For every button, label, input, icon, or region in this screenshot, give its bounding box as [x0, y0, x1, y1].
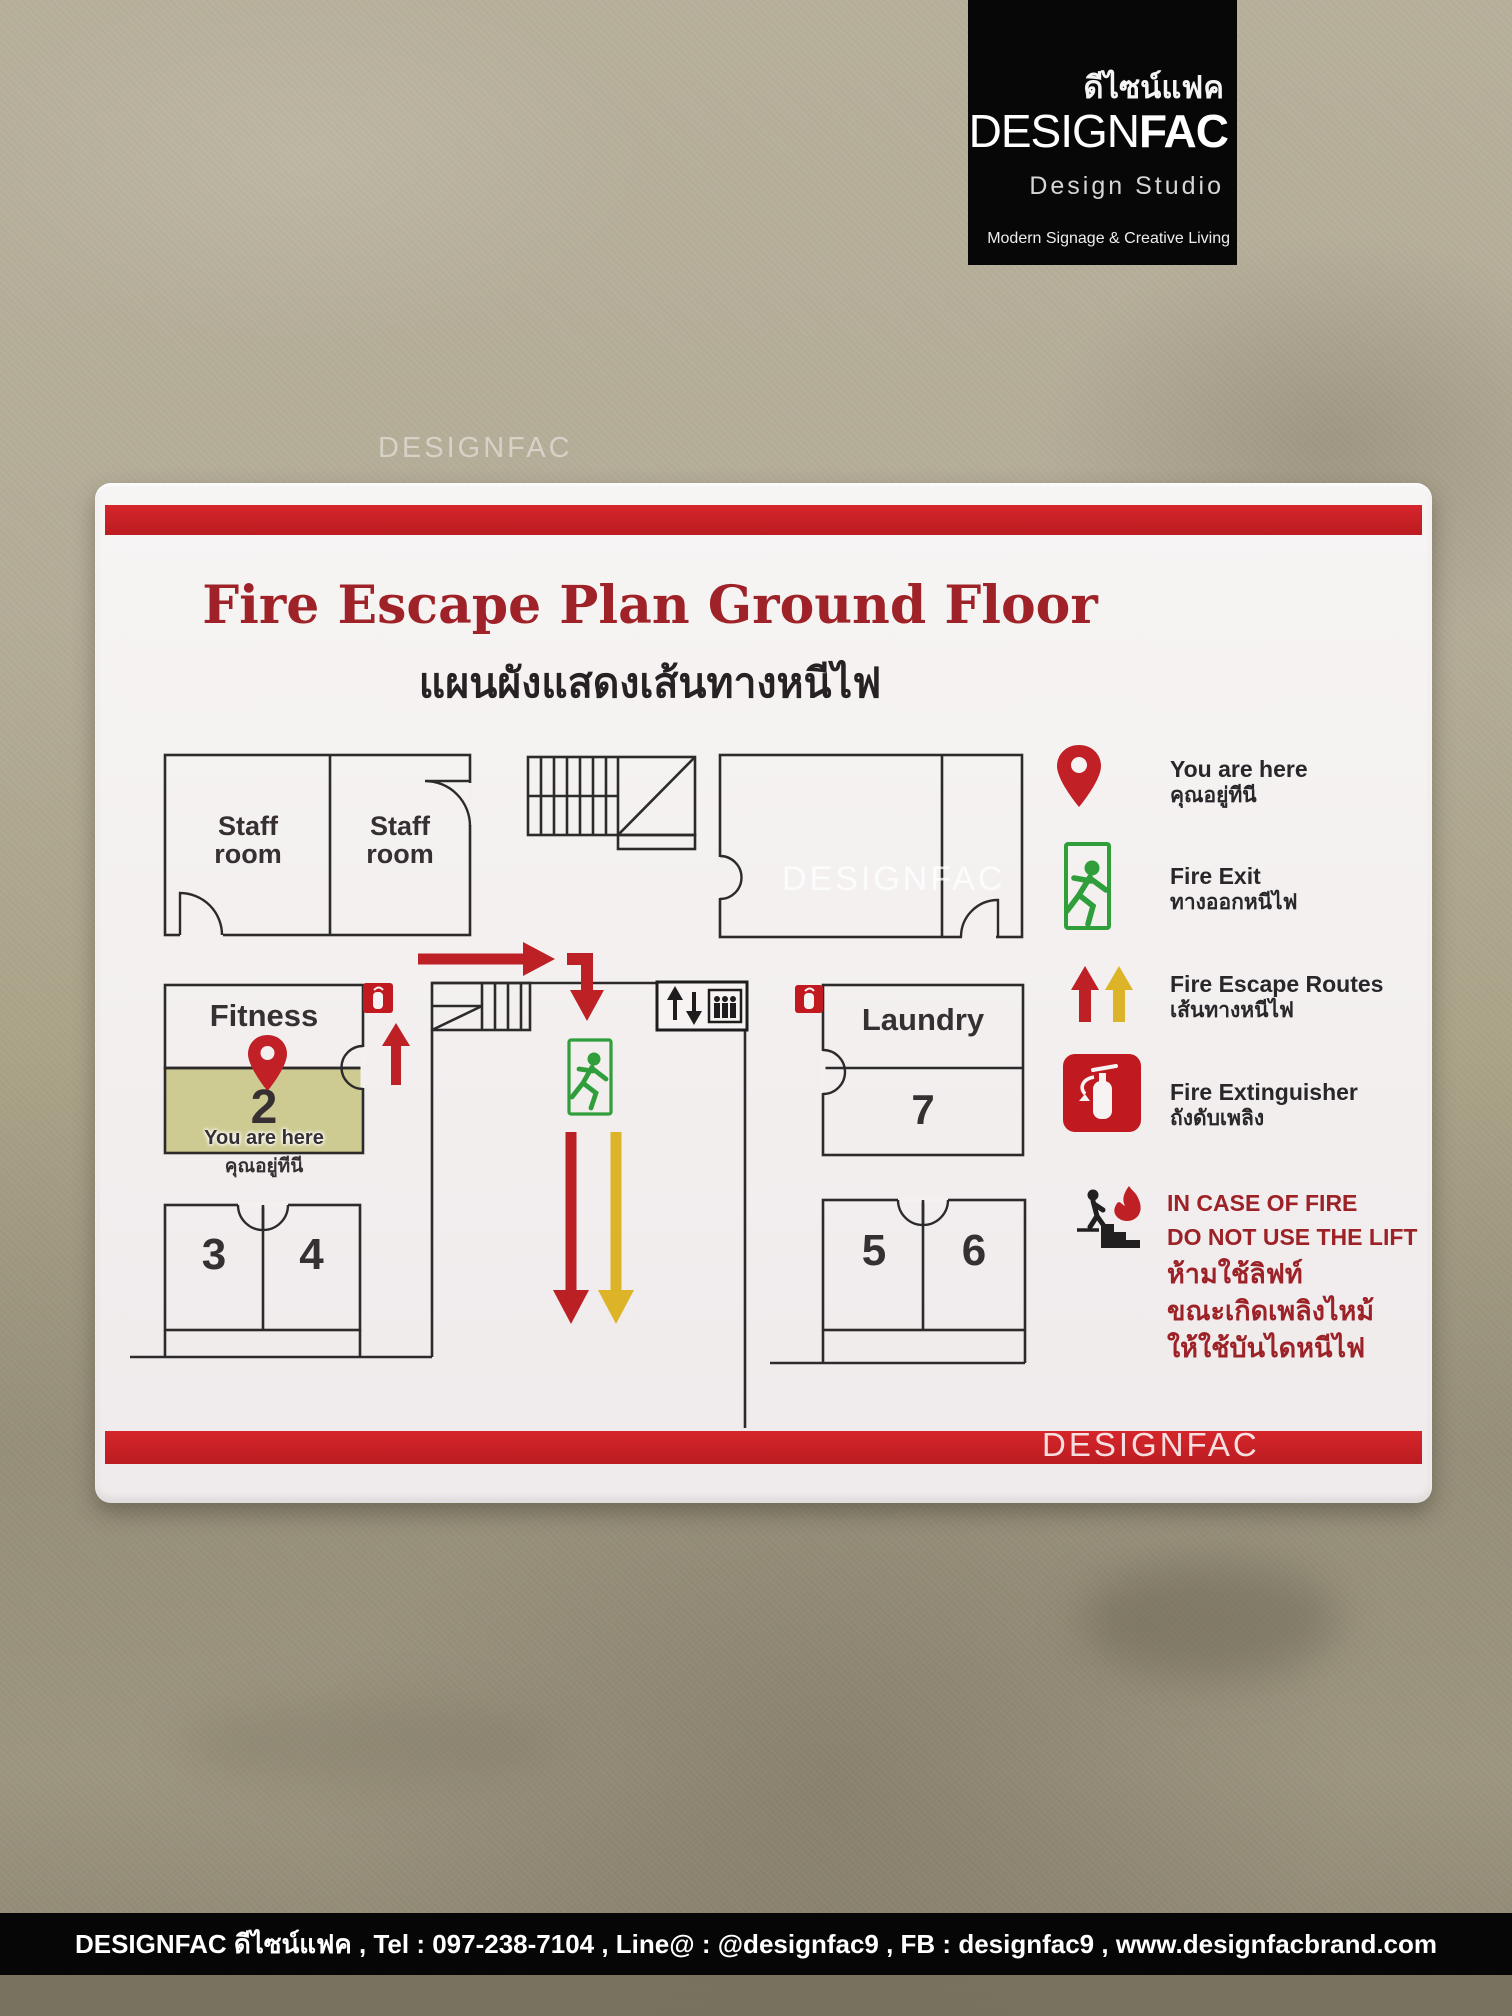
room-label-staff-2: Staff room — [332, 812, 468, 868]
route-arrow-elbow-down — [567, 959, 604, 1021]
plan-you-are-here-en: You are here — [167, 1127, 361, 1150]
legend-escape-routes-en: Fire Escape Routes — [1170, 970, 1383, 998]
legend-you-are-here-en: You are here — [1170, 755, 1308, 783]
route-arrow-down-red — [553, 1132, 589, 1324]
logo-studio-label: Design Studio — [1029, 172, 1224, 201]
route-arrow-up-fitness — [382, 1023, 410, 1085]
wall-smudge — [180, 1700, 560, 1790]
fire-exit-icon — [1060, 840, 1116, 934]
wall-watermark: DESIGNFAC — [378, 432, 573, 465]
in-case-of-fire-icon — [1073, 1186, 1147, 1252]
sign-title: Fire Escape Plan Ground Floor — [95, 575, 1205, 636]
warning-line-5: ให้ใช้บันไดหนีไฟ — [1167, 1326, 1365, 1369]
legend-you-are-here-th: คุณอยู่ทีนี — [1170, 783, 1257, 809]
designfac-logo: ดีไซน์แฟค DESIGNFAC Design Studio Modern… — [968, 0, 1237, 265]
plan-watermark: DESIGNFAC — [782, 860, 1032, 899]
room-label-fitness: Fitness — [167, 998, 361, 1034]
sign-top-stripe — [105, 505, 1422, 535]
fire-extinguisher-icon — [1063, 1054, 1141, 1132]
footer-bar: DESIGNFAC ดีไซน์แฟค , Tel : 097-238-7104… — [0, 1913, 1512, 1975]
wall-smudge — [1080, 1560, 1340, 1680]
logo-brand-design: DESIGN — [969, 105, 1139, 157]
route-arrow-down-yellow — [598, 1132, 634, 1324]
warning-line-2: DO NOT USE THE LIFT — [1167, 1224, 1417, 1251]
sign-subtitle-thai: แผนผังแสดงเส้นทางหนีไฟ — [95, 651, 1205, 716]
warning-line-1: IN CASE OF FIRE — [1167, 1190, 1357, 1217]
logo-tagline: Modern Signage & Creative Living — [987, 230, 1230, 248]
room-label-5: 5 — [825, 1226, 923, 1276]
elevator-icon — [657, 982, 747, 1030]
legend-escape-routes-th: เส้นทางหนีไฟ — [1170, 998, 1294, 1024]
escape-route-arrows-icon — [1071, 966, 1135, 1024]
wall-shadow-strip — [0, 1975, 1512, 2016]
room-label-4: 4 — [265, 1230, 358, 1280]
room-label-7: 7 — [825, 1086, 1021, 1134]
room-label-6: 6 — [925, 1226, 1023, 1276]
fire-extinguisher-marker-laundry — [795, 985, 823, 1013]
route-arrow-right — [418, 942, 555, 976]
staff-line1: Staff — [332, 812, 468, 840]
legend-extinguisher-en: Fire Extinguisher — [1170, 1078, 1358, 1106]
fire-extinguisher-marker-fitness — [363, 983, 393, 1013]
legend-extinguisher-th: ถังดับเพลิง — [1170, 1106, 1264, 1132]
staff-line1: Staff — [167, 812, 329, 840]
legend-fire-exit-th: ทางออกหนีไฟ — [1170, 890, 1297, 916]
legend-fire-exit-en: Fire Exit — [1170, 862, 1261, 890]
room-label-staff-1: Staff room — [167, 812, 329, 868]
plan-you-are-here-th: คุณอยู่ทีนี — [167, 1151, 361, 1181]
room-label-3: 3 — [167, 1230, 261, 1280]
legend: You are here คุณอยู่ทีนี Fire Exit ทางออ… — [1055, 740, 1440, 1410]
logo-brand-name: DESIGNFAC — [969, 104, 1228, 158]
fire-exit-marker — [569, 1040, 611, 1114]
footer-contact-text: DESIGNFAC ดีไซน์แฟค , Tel : 097-238-7104… — [75, 1924, 1437, 1965]
logo-brand-fac: FAC — [1139, 105, 1228, 157]
stripe-watermark: DESIGNFAC — [1042, 1426, 1260, 1464]
staff-line2: room — [167, 840, 329, 868]
location-pin-icon — [1057, 745, 1101, 811]
staff-line2: room — [332, 840, 468, 868]
room-label-laundry: Laundry — [825, 1002, 1021, 1038]
